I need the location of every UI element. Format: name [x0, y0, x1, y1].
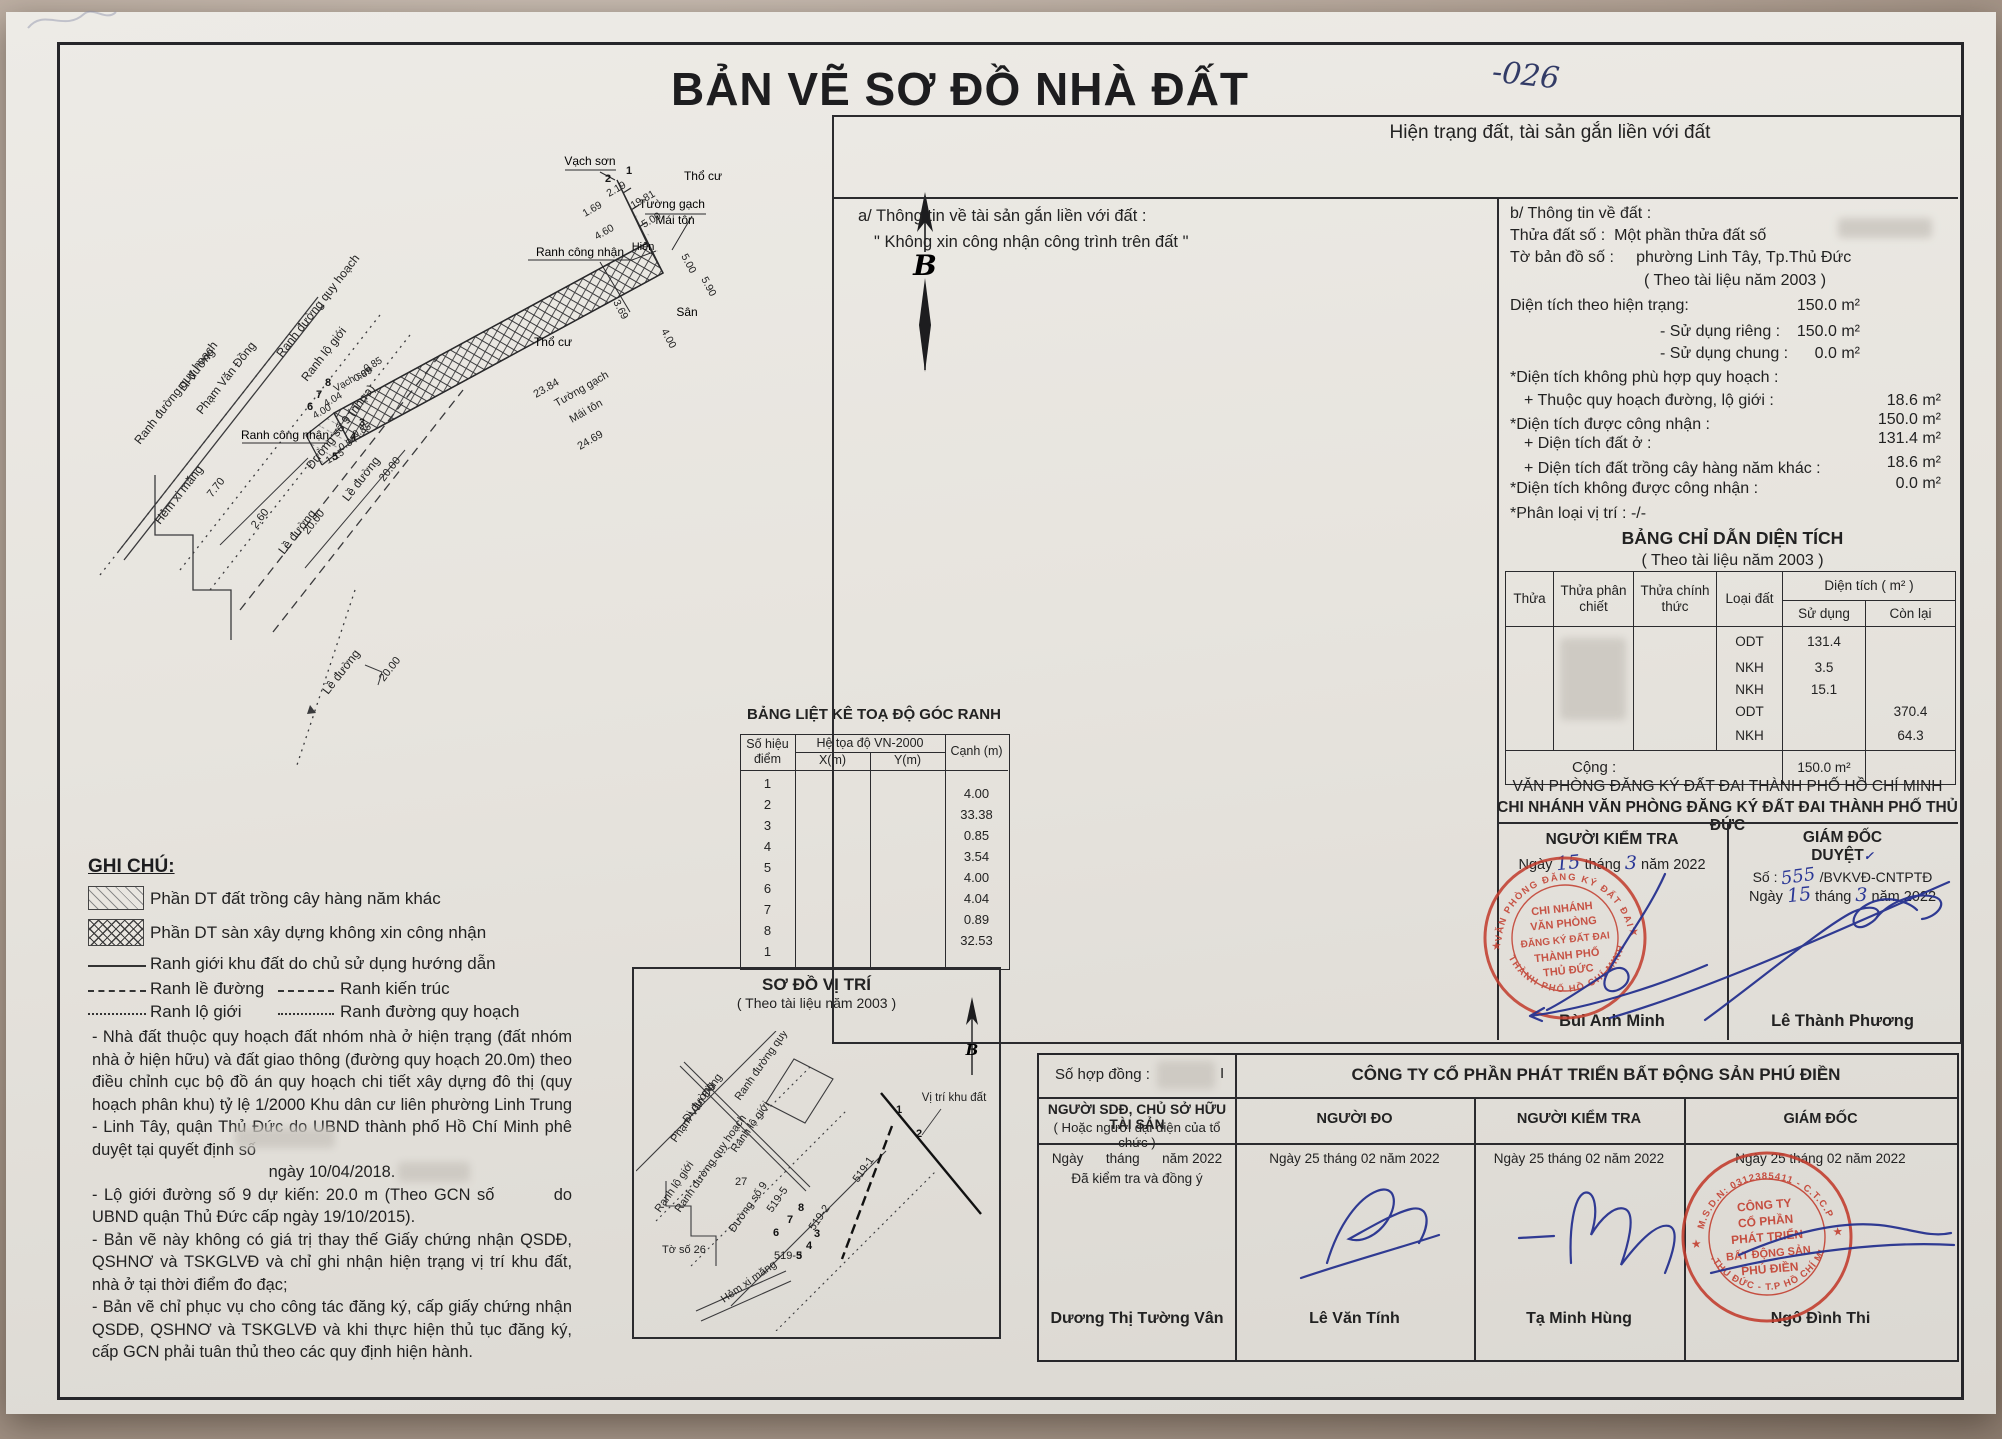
land-type: NKH	[1717, 679, 1783, 701]
svg-text:Ranh đường quy hoạch: Ranh đường quy hoạch	[273, 251, 362, 359]
area-col-dien-tich: Diện tích ( m² )	[1783, 572, 1956, 601]
area-row-label: + Thuộc quy hoạch đường, lộ giới :	[1524, 392, 1774, 410]
contract-number-label: Số hợp đồng :	[1055, 1066, 1150, 1083]
page-title: BẢN VẼ SƠ ĐỒ NHÀ ĐẤT	[600, 62, 1320, 116]
svg-text:3.69: 3.69	[610, 298, 630, 322]
redaction-smudge	[1560, 638, 1626, 720]
legend-swatch-floor-area	[88, 919, 144, 946]
area-row-label: + Diện tích đất trồng cây hàng năm khác …	[1524, 460, 1821, 478]
svg-text:Ranh lộ giới: Ranh lộ giới	[298, 324, 349, 384]
svg-text:6: 6	[307, 401, 313, 413]
legend-line-dash2	[278, 990, 334, 992]
land-use-area: 15.1	[1783, 679, 1866, 701]
legend-floor-area: Phần DT sàn xây dựng không xin công nhận	[150, 923, 486, 943]
land-use-area	[1783, 701, 1866, 723]
svg-text:8: 8	[798, 1202, 804, 1214]
faint-scribble	[22, 2, 122, 42]
mapsheet-value: phường Linh Tây, Tp.Thủ Đức	[1636, 249, 1851, 266]
point-row: 8	[740, 923, 795, 938]
svg-text:Lề đường: Lề đường	[319, 647, 362, 697]
location-map-drawing: Ranh đường quy hoạch Đi đường Phạm Văn Đ…	[636, 1031, 994, 1331]
area-row-value: 150.0 m²	[1797, 323, 1860, 341]
area-row-value: 150.0 m²	[1878, 411, 1941, 429]
contract-table: Số hợp đồng : I CÔNG TY CỔ PHẦN PHÁT TRI…	[1037, 1053, 1959, 1362]
svg-text:5: 5	[332, 451, 338, 463]
area-row-value: 0.0 m²	[1896, 475, 1941, 493]
svg-text:6: 6	[773, 1227, 779, 1239]
document-sheet: BẢN VẼ SƠ ĐỒ NHÀ ĐẤT -026	[0, 0, 2002, 1439]
land-rest-area: 64.3	[1866, 723, 1956, 751]
area-row-label: *Phân loại vị trí : -/-	[1510, 505, 1646, 523]
svg-text:4: 4	[806, 1240, 813, 1252]
svg-text:Vị trí khu đất: Vị trí khu đất	[922, 1092, 987, 1104]
land-info: b/ Thông tin về đất : Thửa đất số : Một …	[1510, 197, 1955, 617]
contract-number-value: I	[1220, 1065, 1224, 1082]
point-row: 7	[740, 902, 795, 917]
point-row: 6	[740, 881, 795, 896]
svg-text:519-1: 519-1	[851, 1155, 877, 1185]
note-paragraph-3: - Bản vẽ này không có giá trị thay thế G…	[92, 1229, 572, 1297]
doc-year: ( Theo tài liệu năm 2003 )	[1570, 272, 1900, 290]
building-strip-crosshatch	[334, 243, 663, 443]
notes-block: - Nhà đất thuộc quy hoạch đất nhóm nhà ở…	[92, 1026, 572, 1364]
legend-line-solid	[88, 965, 146, 967]
legend-architecture: Ranh kiến trúc	[340, 979, 450, 999]
area-row-label: *Diện tích không phù hợp quy hoạch :	[1510, 369, 1778, 387]
area-col-thua: Thửa	[1506, 572, 1554, 627]
land-type: ODT	[1717, 627, 1783, 657]
ranh-cong-nhan-bottom: Ranh công nhận	[241, 428, 329, 442]
area-col-loai-dat: Loại đất	[1717, 572, 1783, 627]
area-row-value: 18.6 m²	[1887, 454, 1941, 472]
strip-labels: 23.84 Tường gạch Mái tôn 24.69	[532, 369, 611, 453]
svg-text:1: 1	[626, 165, 632, 177]
legend-line-dash1	[88, 990, 146, 992]
area-table-subtitle: ( Theo tài liệu năm 2003 )	[1510, 552, 1955, 570]
road-dimensions: 7.70 2.60 20.00 20.00 20.00	[205, 455, 403, 684]
land-use-area	[1783, 723, 1866, 751]
svg-text:4.60: 4.60	[593, 222, 617, 243]
point-row: 5	[740, 860, 795, 875]
point-row: 4	[740, 839, 795, 854]
area-col-su-dung: Sử dụng	[1783, 601, 1866, 627]
svg-text:2: 2	[916, 1128, 922, 1140]
contract-signatures	[1039, 1143, 1957, 1360]
hien-label: Hiên	[632, 241, 655, 253]
area-col-con-lai: Còn lại	[1866, 601, 1956, 627]
area-table-title: BẢNG CHỈ DẪN DIỆN TÍCH	[1510, 528, 1955, 549]
road-labels: Ranh đường quy hoạch Ranh lộ giới Đi đườ…	[131, 251, 382, 696]
redaction-smudge	[235, 1128, 335, 1148]
status-panel-header: Hiện trạng đất, tài sản gắn liền với đất	[1330, 122, 1770, 144]
redaction-smudge	[1838, 218, 1932, 238]
legend-heading: GHI CHÚ:	[88, 856, 175, 878]
svg-text:7: 7	[787, 1214, 793, 1226]
company-name: CÔNG TY CỔ PHẦN PHÁT TRIỂN BẤT ĐỘNG SẢN …	[1235, 1065, 1957, 1085]
legend-line-dot1	[88, 1013, 146, 1015]
redaction-smudge	[398, 1162, 470, 1182]
map-point-numbers: 1 2 3 4 5 6 7 8	[773, 1104, 922, 1262]
signature-flourish	[1301, 1235, 1439, 1278]
point-row: 1	[740, 776, 795, 791]
ranh-cong-nhan-top: Ranh công nhận	[536, 245, 624, 259]
area-row-value: 0.0 m²	[1815, 345, 1860, 363]
signature-le-van-tinh	[1327, 1190, 1427, 1263]
area-col-phan-chiet: Thửa phân chiết	[1554, 572, 1634, 627]
svg-text:3: 3	[814, 1228, 820, 1240]
svg-text:7.70: 7.70	[205, 476, 228, 500]
area-row-label: + Diện tích đất ở :	[1524, 435, 1651, 453]
svg-text:27: 27	[735, 1176, 747, 1188]
svg-text:1.69: 1.69	[581, 199, 605, 220]
svg-text:5.00: 5.00	[678, 252, 698, 276]
director-col-title: GIÁM ĐỐC	[1684, 1111, 1957, 1127]
svg-text:20.00: 20.00	[377, 455, 403, 484]
svg-text:7: 7	[316, 389, 322, 401]
svg-text:5.90: 5.90	[698, 275, 718, 299]
area-row-value: 18.6 m²	[1887, 392, 1941, 410]
note-paragraph-1-date: ngày 10/04/2018.	[92, 1161, 572, 1184]
legend-curb: Ranh lề đường	[150, 979, 264, 999]
land-rest-area: 370.4	[1866, 701, 1956, 723]
col-point-2: điểm	[740, 752, 795, 766]
land-type: ODT	[1717, 701, 1783, 723]
svg-text:8: 8	[325, 377, 331, 389]
svg-text:4.00: 4.00	[658, 327, 678, 351]
parcel-value: Một phần thửa đất số	[1614, 227, 1766, 244]
area-row-label: - Sử dụng riêng :	[1660, 323, 1780, 341]
svg-text:Mái tôn: Mái tôn	[568, 397, 605, 425]
legend-planned-road: Ranh đường quy hoạch	[340, 1002, 519, 1022]
tho-cu-label-top: Thổ cư	[684, 169, 722, 183]
svg-text:2.60: 2.60	[249, 507, 272, 531]
signature-ta-minh-hung	[1519, 1193, 1675, 1273]
area-row-label: *Diện tích không được công nhận :	[1510, 480, 1758, 498]
land-rest-area	[1866, 679, 1956, 701]
svg-text:Lề đường: Lề đường	[339, 454, 382, 504]
point-row: 3	[740, 818, 795, 833]
checker-col-title: NGƯỜI KIỂM TRA	[1474, 1111, 1684, 1127]
land-use-area: 3.5	[1783, 657, 1866, 679]
point-row: 2	[740, 797, 795, 812]
svg-text:5: 5	[796, 1250, 802, 1262]
registry-signatures	[1497, 822, 1958, 1040]
area-row-value: 150.0 m²	[1797, 297, 1860, 315]
san-label: Sân	[676, 305, 697, 319]
legend-road-limit: Ranh lộ giới	[150, 1002, 241, 1022]
svg-text:Hẻm xi măng: Hẻm xi măng	[719, 1258, 779, 1305]
legend-line-dot2	[278, 1013, 334, 1015]
registry-office-line1: VĂN PHÒNG ĐĂNG KÝ ĐẤT ĐAI THÀNH PHỐ HỒ C…	[1497, 778, 1958, 796]
col-point-1: Số hiệu	[740, 737, 795, 751]
asset-info-note: " Không xin công nhận công trình trên đấ…	[874, 233, 1188, 252]
note-paragraph-4: - Bản vẽ chỉ phục vụ cho công tác đăng k…	[92, 1296, 572, 1364]
svg-text:3: 3	[359, 417, 365, 429]
tho-cu-label-mid: Thổ cư	[534, 335, 572, 349]
land-type: NKH	[1717, 657, 1783, 679]
area-row-label: *Diện tích được công nhận :	[1510, 416, 1710, 434]
surveyor-col-title: NGƯỜI ĐO	[1235, 1111, 1474, 1127]
handwritten-code[interactable]: -026	[1490, 55, 1561, 97]
svg-text:519-5: 519-5	[765, 1185, 791, 1215]
area-col-chinh-thuc: Thửa chính thức	[1634, 572, 1717, 627]
arrowhead	[307, 705, 316, 714]
land-type: NKH	[1717, 723, 1783, 751]
road-boundary-lines	[100, 297, 463, 765]
svg-text:24.69: 24.69	[576, 428, 606, 452]
legend-crop-land: Phần DT đất trồng cây hàng năm khác	[150, 889, 441, 909]
land-info-title: b/ Thông tin về đất :	[1510, 205, 1651, 223]
svg-text:1: 1	[896, 1104, 902, 1116]
parcel-label: Thửa đất số :	[1510, 227, 1605, 244]
legend-boundary: Ranh giới khu đất do chủ sử dụng hướng d…	[150, 954, 496, 974]
area-row-label: Diện tích theo hiện trạng:	[1510, 297, 1689, 315]
mapsheet-label: Tờ bản đồ số :	[1510, 249, 1614, 266]
note-paragraph-2: - Lộ giới đường số 9 dự kiến: 20.0 m (Th…	[92, 1184, 572, 1229]
signature-bui-anh-minh	[1547, 874, 1665, 1010]
svg-text:Ranh đường quy hoạch: Ranh đường quy hoạch	[733, 1031, 809, 1103]
land-use-area: 131.4	[1783, 627, 1866, 657]
area-row-value: 131.4 m²	[1878, 430, 1941, 448]
point-row: 1	[740, 944, 795, 959]
signature-ngo-dinh-thi	[1739, 1224, 1951, 1255]
svg-text:4: 4	[350, 431, 357, 443]
svg-text:20.00: 20.00	[377, 655, 403, 684]
svg-text:Hẻm xi măng: Hẻm xi măng	[151, 463, 206, 527]
signature-flourish	[1711, 1244, 1954, 1273]
signature-flourish	[1530, 965, 1707, 1021]
land-rest-area	[1866, 657, 1956, 679]
svg-text:2: 2	[605, 173, 611, 185]
signature-le-thanh-phuong	[1705, 899, 1917, 1020]
redaction-smudge	[1157, 1061, 1215, 1089]
svg-text:Tờ số 26: Tờ số 26	[662, 1244, 706, 1256]
vach-son-label: Vạch sơn	[564, 154, 615, 168]
area-row-label: - Sử dụng chung :	[1660, 345, 1788, 363]
svg-text:Đường số 9: Đường số 9	[727, 1180, 770, 1235]
land-rest-area	[1866, 627, 1956, 657]
legend-swatch-crop-land	[88, 886, 144, 910]
asset-info-title: a/ Thông tin về tài sản gắn liền với đất…	[858, 207, 1146, 226]
